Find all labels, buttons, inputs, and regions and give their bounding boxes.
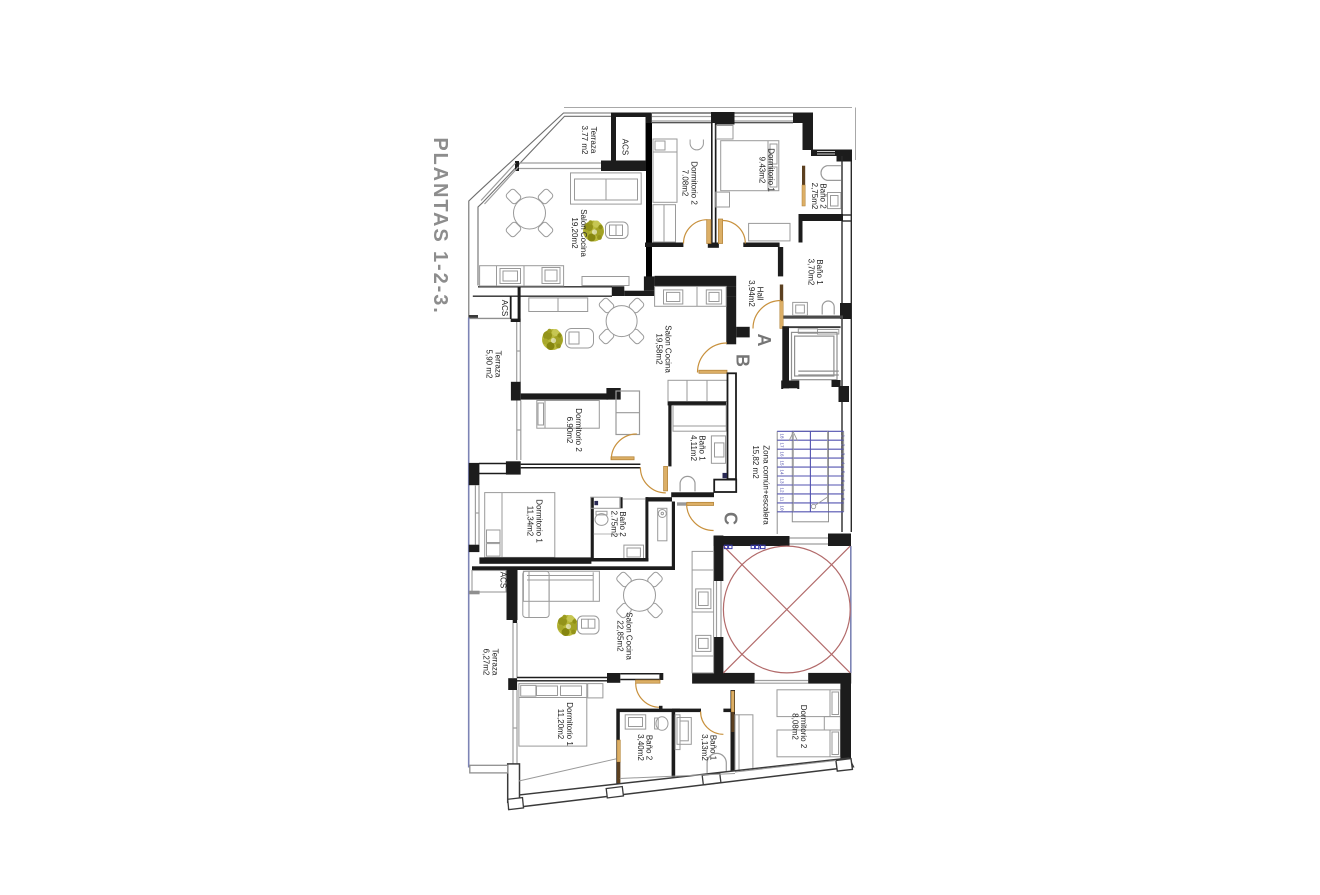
svg-text:2.75m2: 2.75m2 bbox=[610, 511, 619, 538]
svg-text:19,58m2: 19,58m2 bbox=[655, 333, 664, 365]
svg-text:3.77 m2: 3.77 m2 bbox=[580, 126, 589, 155]
svg-text:Salon Cocina: Salon Cocina bbox=[625, 612, 634, 660]
svg-text:Dormitorio 1: Dormitorio 1 bbox=[767, 148, 776, 192]
svg-text:3,70m2: 3,70m2 bbox=[807, 259, 816, 286]
svg-text:ACS: ACS bbox=[500, 300, 509, 316]
svg-text:19,20m2: 19,20m2 bbox=[570, 217, 579, 249]
svg-text:3,13m2: 3,13m2 bbox=[700, 734, 709, 761]
svg-text:10: 10 bbox=[780, 505, 785, 511]
svg-text:3,40m2: 3,40m2 bbox=[636, 734, 645, 761]
svg-text:11: 11 bbox=[780, 497, 785, 502]
svg-text:11,20m2: 11,20m2 bbox=[556, 709, 565, 740]
svg-text:14: 14 bbox=[780, 469, 785, 475]
svg-text:12: 12 bbox=[780, 487, 785, 493]
svg-text:15: 15 bbox=[780, 460, 785, 466]
svg-text:22,85m2: 22,85m2 bbox=[616, 620, 625, 652]
svg-text:18: 18 bbox=[780, 433, 785, 439]
svg-text:3,94m2: 3,94m2 bbox=[747, 280, 756, 307]
svg-text:Terraza: Terraza bbox=[491, 649, 500, 676]
svg-text:6.90m2: 6.90m2 bbox=[565, 417, 574, 444]
svg-text:Zona común+escalera: Zona común+escalera bbox=[762, 445, 771, 525]
svg-text:DB: DB bbox=[757, 544, 762, 550]
svg-text:5,90 m2: 5,90 m2 bbox=[485, 350, 494, 379]
svg-text:17: 17 bbox=[780, 442, 785, 448]
svg-text:Salon Cocina: Salon Cocina bbox=[664, 325, 673, 373]
svg-text:15,82 m2: 15,82 m2 bbox=[751, 445, 760, 479]
svg-text:Terraza: Terraza bbox=[589, 127, 598, 154]
svg-text:ACS: ACS bbox=[499, 572, 508, 588]
svg-text:PLANTAS 1-2-3.: PLANTAS 1-2-3. bbox=[429, 137, 451, 314]
svg-text:11,34m2: 11,34m2 bbox=[526, 506, 535, 537]
svg-text:C: C bbox=[721, 512, 741, 525]
svg-text:6,27m2: 6,27m2 bbox=[482, 649, 491, 676]
svg-text:Dormitorio 1: Dormitorio 1 bbox=[535, 499, 544, 543]
svg-text:Dormitorio 2: Dormitorio 2 bbox=[574, 408, 583, 452]
svg-text:A: A bbox=[754, 334, 774, 347]
svg-text:9.43m2: 9.43m2 bbox=[758, 157, 767, 184]
svg-text:Dormitorio 1: Dormitorio 1 bbox=[565, 702, 574, 746]
svg-text:ACS: ACS bbox=[621, 139, 630, 155]
svg-text:B: B bbox=[733, 354, 753, 367]
svg-text:Salon Cocina: Salon Cocina bbox=[579, 209, 588, 257]
svg-text:Dormitorio 2: Dormitorio 2 bbox=[690, 161, 699, 205]
svg-text:8,08m2: 8,08m2 bbox=[791, 713, 800, 740]
svg-text:Terraza: Terraza bbox=[494, 351, 503, 378]
svg-text:4,11m2: 4,11m2 bbox=[689, 435, 698, 462]
svg-text:7.08m2: 7.08m2 bbox=[681, 170, 690, 197]
svg-text:16: 16 bbox=[780, 451, 785, 457]
svg-text:13: 13 bbox=[780, 478, 785, 484]
svg-text:2,75m2: 2,75m2 bbox=[810, 183, 819, 210]
